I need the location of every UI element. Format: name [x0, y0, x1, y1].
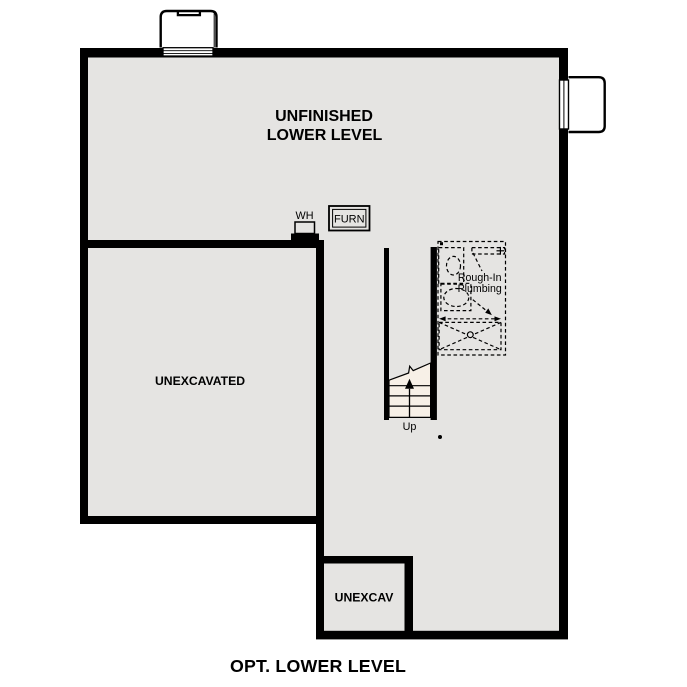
svg-text:OPT. LOWER LEVEL: OPT. LOWER LEVEL — [230, 656, 406, 676]
svg-text:UNEXCAV: UNEXCAV — [335, 591, 395, 605]
svg-text:Plumbing: Plumbing — [458, 283, 502, 295]
svg-text:UNEXCAVATED: UNEXCAVATED — [155, 374, 245, 388]
svg-text:FURN: FURN — [334, 214, 365, 226]
svg-text:Up: Up — [403, 421, 417, 433]
svg-text:WH: WH — [296, 210, 314, 222]
svg-text:UNFINISHED: UNFINISHED — [275, 108, 373, 125]
svg-text:LOWER LEVEL: LOWER LEVEL — [267, 127, 383, 144]
